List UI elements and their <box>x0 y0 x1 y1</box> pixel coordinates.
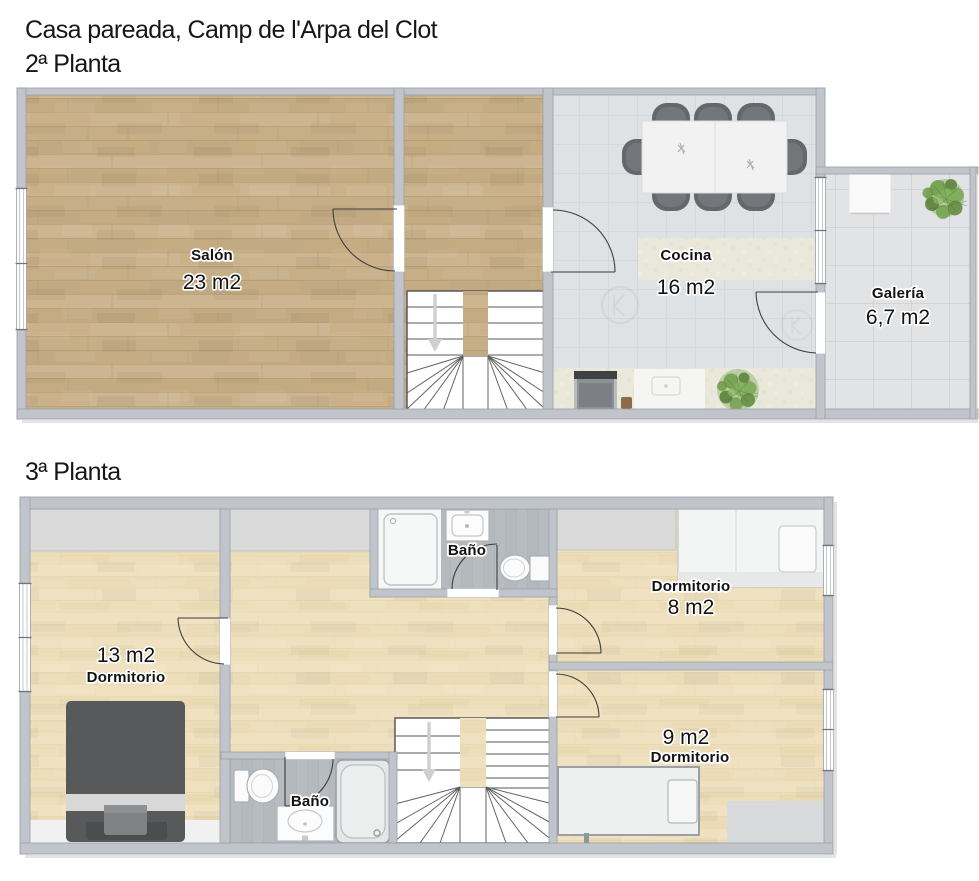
svg-text:13 m2: 13 m2 <box>97 644 155 667</box>
svg-text:Salón: Salón <box>191 247 233 264</box>
svg-text:9 m2: 9 m2 <box>663 726 710 749</box>
svg-text:6,7 m2: 6,7 m2 <box>866 306 930 329</box>
svg-text:Cocina: Cocina <box>660 247 712 264</box>
svg-text:Dormitorio: Dormitorio <box>652 578 731 595</box>
svg-text:Galería: Galería <box>872 285 925 302</box>
svg-text:Dormitorio: Dormitorio <box>87 669 166 686</box>
svg-text:23 m2: 23 m2 <box>183 271 241 294</box>
svg-text:16 m2: 16 m2 <box>657 276 715 299</box>
svg-text:Dormitorio: Dormitorio <box>651 749 730 766</box>
svg-text:Baño: Baño <box>291 793 329 810</box>
svg-text:8 m2: 8 m2 <box>668 596 715 619</box>
svg-text:Baño: Baño <box>448 542 486 559</box>
